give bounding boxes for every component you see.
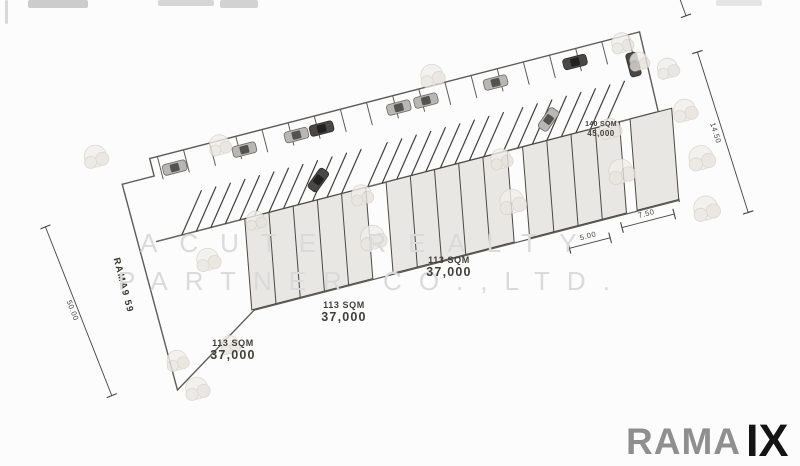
car-icon bbox=[231, 141, 257, 158]
tree-icon bbox=[206, 132, 233, 157]
cropped-car-artifact bbox=[158, 0, 214, 6]
tree-icon bbox=[164, 348, 191, 373]
rotated-plan-group: RAMA9 59 50.00 6.00 14.50 5.00 7.50 bbox=[13, 0, 763, 427]
dimension-right-label: 14.50 bbox=[708, 121, 723, 144]
parking-tick bbox=[262, 130, 268, 152]
parking-tick bbox=[602, 42, 608, 64]
parking-tick bbox=[549, 55, 555, 77]
car-icon bbox=[413, 92, 439, 109]
building-block bbox=[615, 108, 695, 210]
tree-icon bbox=[670, 96, 699, 123]
unit-price: 37,000 bbox=[210, 348, 255, 362]
unit-price: 37,000 bbox=[426, 265, 471, 279]
unit-area: 113 SQM bbox=[426, 255, 471, 265]
dimension-line bbox=[697, 50, 748, 215]
tree-icon bbox=[81, 142, 110, 169]
parking-tick bbox=[445, 82, 451, 104]
car-icon bbox=[283, 127, 309, 144]
parking-tick bbox=[340, 109, 346, 131]
tree-icon bbox=[182, 374, 211, 401]
rama-ix-logo: RAMA IX bbox=[626, 423, 789, 460]
unit-label-2: 113 SQM 37,000 bbox=[321, 300, 366, 325]
car-icon bbox=[307, 167, 330, 193]
parking-tick bbox=[523, 62, 529, 84]
tree-icon bbox=[417, 61, 446, 88]
dimension-line bbox=[664, 0, 686, 17]
cropped-car-artifact bbox=[220, 0, 258, 8]
parking-tick bbox=[367, 103, 373, 125]
page-edge-mark bbox=[5, 0, 8, 24]
logo-text-ix: IX bbox=[746, 423, 789, 458]
site-plan-page: RAMA9 59 50.00 6.00 14.50 5.00 7.50 ACUT… bbox=[0, 0, 800, 448]
dimension-left-label: 50.00 bbox=[65, 299, 81, 322]
car-icon bbox=[309, 120, 335, 137]
tree-icon bbox=[193, 245, 222, 272]
unit-label-1: 113 SQM 37,000 bbox=[210, 338, 255, 363]
unit-label-4: 140 SQM 45,000 bbox=[585, 121, 617, 138]
cropped-car-artifact bbox=[28, 0, 88, 8]
unit-label-3: 113 SQM 37,000 bbox=[426, 255, 471, 280]
dimension-bottom-small-label: 5.00 bbox=[579, 229, 597, 242]
site-plan-svg: RAMA9 59 50.00 6.00 14.50 5.00 7.50 bbox=[0, 0, 800, 448]
parking-tick bbox=[471, 75, 477, 97]
dimension-tick bbox=[40, 225, 50, 229]
unit-area: 113 SQM bbox=[321, 300, 366, 310]
dimension-tick bbox=[107, 394, 117, 398]
unit-area: 113 SQM bbox=[210, 338, 255, 348]
tree-icon bbox=[654, 56, 681, 81]
car-icon bbox=[162, 159, 188, 176]
logo-text-rama: RAMA bbox=[626, 423, 741, 460]
street-label: RAMA9 59 bbox=[111, 257, 136, 315]
car-icon bbox=[562, 54, 588, 71]
tree-icon bbox=[685, 142, 717, 172]
unit-price: 37,000 bbox=[321, 310, 366, 324]
tree-icon bbox=[690, 193, 722, 223]
unit-area: 140 SQM bbox=[585, 121, 617, 129]
car-icon bbox=[483, 74, 509, 91]
cropped-car-artifact bbox=[716, 0, 762, 6]
unit-price: 45,000 bbox=[585, 129, 617, 138]
car-icon bbox=[386, 99, 412, 116]
